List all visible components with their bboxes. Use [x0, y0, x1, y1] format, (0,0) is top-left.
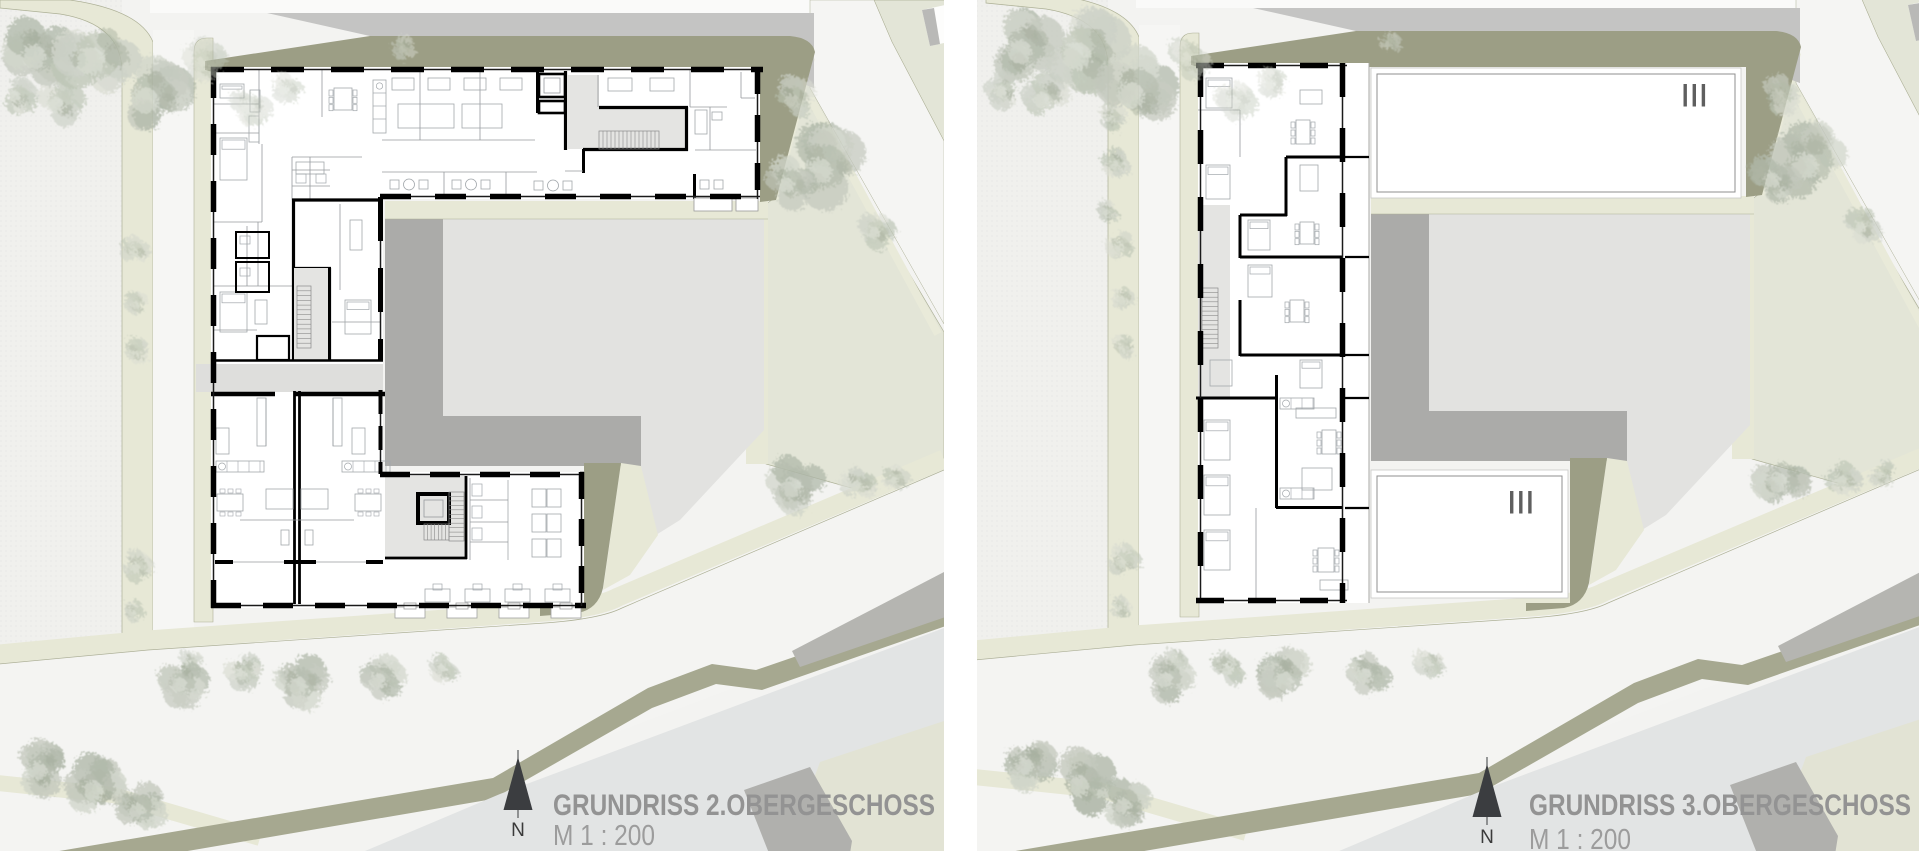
svg-text:N: N: [511, 820, 525, 841]
svg-text:GRUNDRISS 2.OBERGESCHOSS: GRUNDRISS 2.OBERGESCHOSS: [553, 789, 935, 822]
svg-text:M 1 : 200: M 1 : 200: [553, 820, 655, 851]
svg-text:M 1 : 200: M 1 : 200: [1529, 824, 1631, 851]
svg-text:GRUNDRISS 3.OBERGESCHOSS: GRUNDRISS 3.OBERGESCHOSS: [1529, 789, 1911, 822]
svg-text:N: N: [1480, 827, 1494, 848]
